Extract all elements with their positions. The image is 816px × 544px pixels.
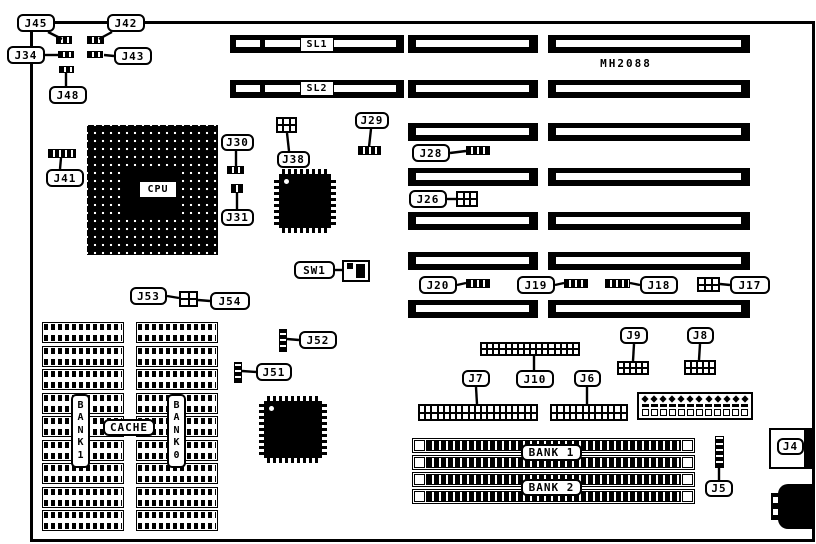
header-j26 bbox=[456, 191, 478, 207]
power-pin bbox=[651, 409, 658, 416]
power-pin bbox=[732, 409, 739, 416]
label-bank0-cache: B A N K 0 bbox=[167, 394, 186, 468]
pin-cell bbox=[713, 286, 718, 291]
header-j6 bbox=[550, 404, 628, 421]
slot-right-7 bbox=[548, 300, 750, 318]
pin-cell bbox=[552, 414, 556, 420]
pin-cell bbox=[488, 414, 492, 420]
pin-cell bbox=[426, 414, 430, 420]
pin-cell bbox=[278, 126, 282, 131]
pin-cell bbox=[476, 406, 480, 412]
motherboard-diagram: J45J42J34J43J48J41J30J31J38J29J28J26SW1J… bbox=[0, 0, 816, 544]
dip-chip bbox=[136, 487, 218, 508]
pin-cell bbox=[562, 350, 566, 354]
pin-cell bbox=[537, 350, 541, 354]
jumper-j19 bbox=[564, 279, 588, 288]
slot-mid-5-main bbox=[416, 217, 529, 224]
label-j48: J48 bbox=[49, 86, 87, 104]
pin-cell bbox=[698, 362, 702, 367]
label-j31: J31 bbox=[221, 209, 254, 226]
jumper-j42 bbox=[87, 36, 104, 44]
label-j30: J30 bbox=[221, 134, 254, 151]
pin-cell bbox=[513, 414, 517, 420]
slot-right-1 bbox=[548, 35, 750, 53]
pin-cell bbox=[432, 414, 436, 420]
pin-cell bbox=[470, 406, 474, 412]
pin-cell bbox=[584, 414, 588, 420]
pin-cell bbox=[619, 369, 623, 373]
simm-clip-left bbox=[414, 457, 425, 468]
label-j4: J4 bbox=[777, 438, 804, 455]
slot-right-4-main bbox=[556, 173, 741, 180]
simm-clip-left bbox=[414, 474, 425, 485]
dip-pins-bottom bbox=[44, 500, 122, 506]
power-pin bbox=[732, 404, 739, 407]
slot-right-4 bbox=[548, 168, 750, 186]
pin-cell bbox=[532, 406, 536, 412]
pin-cell bbox=[420, 406, 424, 412]
power-pin bbox=[696, 409, 703, 416]
dip-chip bbox=[42, 346, 124, 367]
label-j26: J26 bbox=[409, 190, 447, 208]
label-j5: J5 bbox=[705, 480, 733, 497]
label-bank2-simm: BANK 2 bbox=[521, 479, 582, 496]
header-j17 bbox=[697, 277, 720, 292]
pin-cell bbox=[501, 414, 505, 420]
pin-cell bbox=[609, 406, 613, 412]
dip-pins-top bbox=[44, 512, 122, 518]
pin-cell bbox=[532, 414, 536, 420]
pin-cell bbox=[625, 369, 629, 373]
dip-pins-bottom bbox=[138, 382, 216, 388]
keyboard-connector-notch bbox=[772, 496, 779, 504]
power-pin bbox=[678, 404, 685, 407]
power-pin bbox=[696, 404, 703, 407]
pin-cell bbox=[699, 286, 704, 291]
pin-cell bbox=[531, 350, 535, 354]
pin-cell bbox=[526, 414, 530, 420]
qfp-chip-lower-leads-bottom bbox=[267, 458, 319, 463]
simm-clip-right bbox=[682, 491, 693, 502]
dip-chip bbox=[42, 487, 124, 508]
pin-cell bbox=[513, 344, 517, 348]
pin-cell bbox=[710, 369, 714, 374]
slot-right-7-main bbox=[556, 305, 741, 312]
pin-cell bbox=[590, 414, 594, 420]
qfp-chip-upper bbox=[274, 169, 336, 233]
pin-cell bbox=[571, 406, 575, 412]
slot-mid-1 bbox=[408, 35, 538, 53]
jumper-j5 bbox=[715, 436, 724, 468]
dip-pins-bottom bbox=[44, 523, 122, 529]
pin-cell bbox=[643, 363, 647, 367]
label-cpu: CPU bbox=[139, 181, 177, 198]
pin-cell bbox=[519, 344, 523, 348]
jumper-j45 bbox=[56, 36, 72, 44]
pin-cell bbox=[482, 414, 486, 420]
slot-mid-4-main bbox=[416, 173, 529, 180]
label-j19: J19 bbox=[517, 276, 555, 294]
pin-cell bbox=[519, 350, 523, 354]
dip-pins-top bbox=[138, 371, 216, 377]
label-j18: J18 bbox=[640, 276, 678, 294]
dip-pins-bottom bbox=[44, 359, 122, 365]
pin-cell bbox=[577, 414, 581, 420]
dip-pins-top bbox=[44, 348, 122, 354]
pin-cell bbox=[615, 414, 619, 420]
pin-cell bbox=[577, 406, 581, 412]
pin-cell bbox=[558, 406, 562, 412]
pin-cell bbox=[537, 344, 541, 348]
pin-cell bbox=[609, 414, 613, 420]
slot-mid-4 bbox=[408, 168, 538, 186]
pin-cell bbox=[458, 193, 463, 198]
dip-pins-bottom bbox=[138, 523, 216, 529]
pin-cell bbox=[603, 414, 607, 420]
pin-cell bbox=[710, 362, 714, 367]
pin-cell bbox=[278, 119, 282, 124]
pin-cell bbox=[686, 369, 690, 374]
power-pin bbox=[660, 409, 667, 416]
qfp-chip-upper-pin1-dot bbox=[284, 179, 289, 184]
slot-mid-3 bbox=[408, 123, 538, 141]
pin-cell bbox=[603, 406, 607, 412]
simm-clip-left bbox=[414, 491, 425, 502]
pin-cell bbox=[432, 406, 436, 412]
switch-sw1-body bbox=[342, 260, 370, 282]
label-j54: J54 bbox=[210, 292, 250, 310]
pin-cell bbox=[519, 406, 523, 412]
pin-cell bbox=[686, 362, 690, 367]
dip-pins-top bbox=[44, 324, 122, 330]
pin-cell bbox=[692, 369, 696, 374]
slot-right-2-main bbox=[556, 85, 741, 92]
jumper-j34 bbox=[58, 51, 74, 58]
pin-cell bbox=[513, 406, 517, 412]
simm-clip-right bbox=[682, 474, 693, 485]
dip-pins-bottom bbox=[44, 476, 122, 482]
pin-cell bbox=[507, 344, 511, 348]
label-j9: J9 bbox=[620, 327, 648, 344]
pin-cell bbox=[181, 300, 188, 305]
dip-pins-top bbox=[138, 512, 216, 518]
label-sw1: SW1 bbox=[294, 261, 335, 279]
pin-cell bbox=[552, 406, 556, 412]
dip-pins-bottom bbox=[138, 335, 216, 341]
qfp-chip-lower bbox=[259, 396, 327, 463]
pin-cell bbox=[565, 406, 569, 412]
label-j41: J41 bbox=[46, 169, 84, 187]
jumper-j18 bbox=[605, 279, 630, 288]
dip-pins-bottom bbox=[138, 500, 216, 506]
jumper-j52 bbox=[279, 329, 287, 352]
label-j45: J45 bbox=[17, 14, 55, 32]
slot-right-2 bbox=[548, 80, 750, 98]
pin-cell bbox=[494, 350, 498, 354]
pin-cell bbox=[494, 344, 498, 348]
pin-cell bbox=[556, 350, 560, 354]
pin-cell bbox=[643, 369, 647, 373]
pin-cell bbox=[543, 350, 547, 354]
pin-cell bbox=[488, 406, 492, 412]
qfp-chip-lower-leads-right bbox=[322, 404, 327, 455]
pin-cell bbox=[451, 406, 455, 412]
keyboard-connector-notch bbox=[772, 508, 779, 516]
pin-cell bbox=[465, 200, 470, 205]
dip-pins-top bbox=[138, 348, 216, 354]
jumper-j31 bbox=[231, 184, 243, 193]
label-j42: J42 bbox=[107, 14, 145, 32]
header-j10 bbox=[480, 342, 580, 356]
pin-cell bbox=[470, 414, 474, 420]
pin-cell bbox=[525, 350, 529, 354]
dip-pins-top bbox=[138, 489, 216, 495]
label-j34: J34 bbox=[7, 46, 45, 64]
jumper-j43 bbox=[87, 51, 103, 58]
power-pin bbox=[705, 404, 712, 407]
pin-cell bbox=[713, 279, 718, 284]
switch-bar bbox=[356, 264, 365, 278]
pin-cell bbox=[181, 293, 188, 298]
label-cache: CACHE bbox=[103, 419, 155, 436]
pin-cell bbox=[284, 126, 288, 131]
power-pin bbox=[642, 404, 649, 407]
pin-cell bbox=[622, 414, 626, 420]
pin-cell bbox=[482, 344, 486, 348]
dip-chip bbox=[42, 369, 124, 390]
slot-mid-6 bbox=[408, 252, 538, 270]
pin-cell bbox=[549, 350, 553, 354]
pin-cell bbox=[625, 363, 629, 367]
header-j7 bbox=[418, 404, 538, 421]
label-j52: J52 bbox=[299, 331, 337, 349]
pin-cell bbox=[445, 406, 449, 412]
pin-cell bbox=[291, 119, 295, 124]
pin-cell bbox=[519, 414, 523, 420]
label-j51: J51 bbox=[256, 363, 292, 381]
pin-cell bbox=[699, 279, 704, 284]
power-pin bbox=[678, 409, 685, 416]
simm-clip-left bbox=[414, 440, 425, 451]
power-connector bbox=[637, 392, 753, 420]
label-j17: J17 bbox=[730, 276, 770, 294]
dip-pins-top bbox=[138, 324, 216, 330]
label-sl1: SL1 bbox=[300, 37, 334, 52]
slot-mid-6-main bbox=[416, 257, 529, 264]
header-j53-j54 bbox=[179, 291, 198, 307]
pin-cell bbox=[556, 344, 560, 348]
pin-cell bbox=[451, 414, 455, 420]
slot-right-6-main bbox=[556, 257, 741, 264]
label-sl2: SL2 bbox=[300, 81, 334, 96]
pin-cell bbox=[596, 406, 600, 412]
slot-right-3 bbox=[548, 123, 750, 141]
slot-mid-7 bbox=[408, 300, 538, 318]
label-bank1-cache: B A N K 1 bbox=[71, 394, 90, 468]
jumper-j29 bbox=[358, 146, 381, 155]
pin-cell bbox=[463, 406, 467, 412]
pin-cell bbox=[631, 363, 635, 367]
jumper-j48 bbox=[59, 66, 74, 73]
dip-chip bbox=[136, 322, 218, 343]
pin-cell bbox=[465, 193, 470, 198]
pin-cell bbox=[463, 414, 467, 420]
power-pin bbox=[741, 409, 748, 416]
pin-cell bbox=[457, 414, 461, 420]
pin-cell bbox=[507, 406, 511, 412]
dip-chip bbox=[42, 322, 124, 343]
keyboard-connector bbox=[778, 484, 813, 529]
slot-sl1-key bbox=[236, 40, 260, 47]
slot-mid-5 bbox=[408, 212, 538, 230]
pin-cell bbox=[439, 406, 443, 412]
pin-cell bbox=[495, 414, 499, 420]
label-j53: J53 bbox=[130, 287, 167, 305]
slot-mid-2 bbox=[408, 80, 538, 98]
qfp-chip-upper-leads-right bbox=[331, 177, 336, 225]
pin-cell bbox=[526, 406, 530, 412]
label-j10: J10 bbox=[516, 370, 554, 388]
pin-cell bbox=[482, 406, 486, 412]
pin-cell bbox=[615, 406, 619, 412]
power-pin bbox=[705, 409, 712, 416]
pin-cell bbox=[590, 406, 594, 412]
pin-cell bbox=[495, 406, 499, 412]
pin-cell bbox=[574, 344, 578, 348]
pin-cell bbox=[500, 350, 504, 354]
pin-cell bbox=[488, 344, 492, 348]
label-j7: J7 bbox=[462, 370, 490, 387]
pin-cell bbox=[706, 279, 711, 284]
pin-cell bbox=[543, 344, 547, 348]
pin-cell bbox=[500, 344, 504, 348]
power-pin bbox=[741, 404, 748, 407]
slot-mid-7-main bbox=[416, 305, 529, 312]
pin-cell bbox=[284, 119, 288, 124]
header-j9 bbox=[617, 361, 649, 375]
pin-cell bbox=[501, 406, 505, 412]
slot-right-3-main bbox=[556, 128, 741, 135]
pin-cell bbox=[291, 126, 295, 131]
label-j20: J20 bbox=[419, 276, 457, 294]
label-j29: J29 bbox=[355, 112, 389, 129]
jumper-j30 bbox=[227, 166, 244, 174]
pin-cell bbox=[471, 200, 476, 205]
dip-pins-top bbox=[44, 489, 122, 495]
power-pin bbox=[723, 409, 730, 416]
pin-cell bbox=[622, 406, 626, 412]
label-bank1-simm: BANK 1 bbox=[521, 444, 582, 461]
slot-right-1-main bbox=[556, 40, 741, 47]
power-connector-row bbox=[642, 409, 748, 416]
pin-cell bbox=[458, 200, 463, 205]
pin-cell bbox=[445, 414, 449, 420]
simm-clip-right bbox=[682, 457, 693, 468]
pin-cell bbox=[558, 414, 562, 420]
pin-cell bbox=[571, 414, 575, 420]
slot-right-6 bbox=[548, 252, 750, 270]
label-j43: J43 bbox=[114, 47, 152, 65]
jumper-j51 bbox=[234, 362, 242, 383]
pin-cell bbox=[507, 350, 511, 354]
dip-chip bbox=[136, 369, 218, 390]
power-pin bbox=[660, 404, 667, 407]
slot-mid-1-main bbox=[416, 40, 529, 47]
dip-pins-bottom bbox=[44, 382, 122, 388]
pin-cell bbox=[457, 406, 461, 412]
power-pin bbox=[651, 404, 658, 407]
pin-cell bbox=[476, 414, 480, 420]
pin-cell bbox=[420, 414, 424, 420]
header-j8 bbox=[684, 360, 716, 375]
pin-cell bbox=[525, 344, 529, 348]
pin-cell bbox=[507, 414, 511, 420]
pin-cell bbox=[190, 300, 197, 305]
pin-cell bbox=[704, 369, 708, 374]
slot-right-5 bbox=[548, 212, 750, 230]
pin-cell bbox=[568, 350, 572, 354]
label-j38: J38 bbox=[277, 151, 310, 168]
power-pin bbox=[669, 409, 676, 416]
pin-cell bbox=[692, 362, 696, 367]
pin-cell bbox=[631, 369, 635, 373]
pin-cell bbox=[637, 363, 641, 367]
label-j6: J6 bbox=[574, 370, 601, 387]
switch-notch bbox=[347, 263, 353, 269]
slot-mid-3-main bbox=[416, 128, 529, 135]
slot-sl2-key bbox=[236, 85, 260, 92]
pin-cell bbox=[426, 406, 430, 412]
pin-cell bbox=[596, 414, 600, 420]
power-pin bbox=[687, 409, 694, 416]
label-j28: J28 bbox=[412, 144, 450, 162]
jumper-j28 bbox=[466, 146, 490, 155]
pin-cell bbox=[439, 414, 443, 420]
pin-cell bbox=[698, 369, 702, 374]
pin-cell bbox=[568, 344, 572, 348]
pin-cell bbox=[704, 362, 708, 367]
header-j38 bbox=[276, 117, 297, 133]
jumper-j20 bbox=[466, 279, 490, 288]
dip-chip bbox=[136, 346, 218, 367]
qfp-chip-lower-pin1-dot bbox=[269, 406, 274, 411]
power-pin bbox=[723, 404, 730, 407]
connector-j4-edge bbox=[804, 428, 812, 469]
dip-pins-bottom bbox=[138, 476, 216, 482]
pin-cell bbox=[549, 344, 553, 348]
dip-pins-bottom bbox=[44, 335, 122, 341]
pin-cell bbox=[637, 369, 641, 373]
dip-chip bbox=[136, 510, 218, 531]
pin-cell bbox=[488, 350, 492, 354]
pin-cell bbox=[471, 193, 476, 198]
pin-cell bbox=[562, 344, 566, 348]
dip-chip bbox=[42, 510, 124, 531]
slot-right-5-main bbox=[556, 217, 741, 224]
dip-pins-bottom bbox=[138, 359, 216, 365]
power-pin bbox=[687, 404, 694, 407]
pin-cell bbox=[565, 414, 569, 420]
power-pin bbox=[714, 409, 721, 416]
qfp-chip-upper-leads-bottom bbox=[282, 228, 328, 233]
pin-cell bbox=[574, 350, 578, 354]
label-model-number: MH2088 bbox=[595, 56, 657, 70]
label-j8: J8 bbox=[687, 327, 714, 344]
power-pin bbox=[669, 404, 676, 407]
pin-cell bbox=[190, 293, 197, 298]
jumper-j41 bbox=[48, 149, 76, 158]
simm-clip-right bbox=[682, 440, 693, 451]
